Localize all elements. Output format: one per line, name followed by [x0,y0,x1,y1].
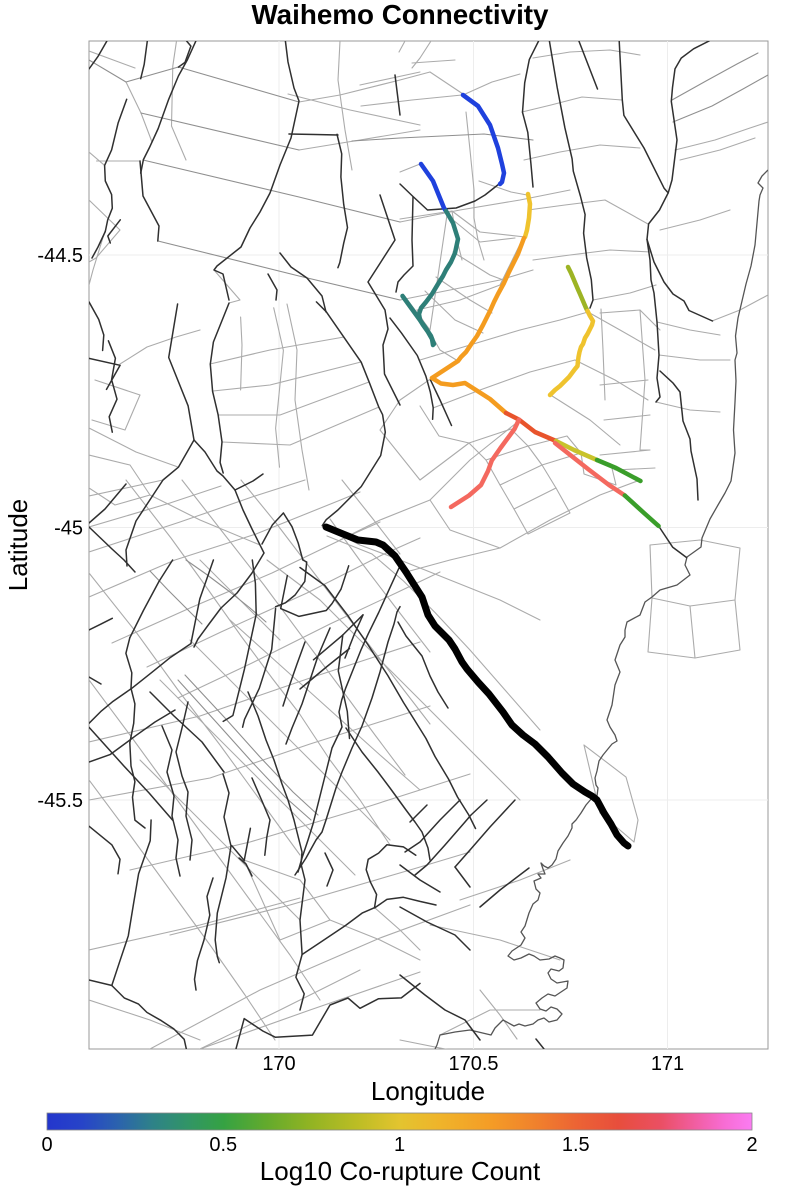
svg-text:171: 171 [651,1053,684,1075]
svg-text:Waihemo Connectivity: Waihemo Connectivity [251,0,549,30]
svg-text:170.5: 170.5 [448,1053,498,1075]
svg-text:Latitude: Latitude [3,499,33,592]
svg-text:1: 1 [394,1134,405,1156]
svg-text:-45.5: -45.5 [37,790,83,812]
svg-text:1.5: 1.5 [562,1134,590,1156]
svg-text:2: 2 [746,1134,757,1156]
svg-text:Log10 Co-rupture Count: Log10 Co-rupture Count [260,1156,541,1186]
svg-text:0: 0 [41,1134,52,1156]
svg-text:-44.5: -44.5 [37,245,83,267]
svg-text:170: 170 [262,1053,295,1075]
svg-text:0.5: 0.5 [209,1134,237,1156]
svg-text:Longitude: Longitude [371,1076,485,1106]
svg-text:-45: -45 [54,518,83,540]
